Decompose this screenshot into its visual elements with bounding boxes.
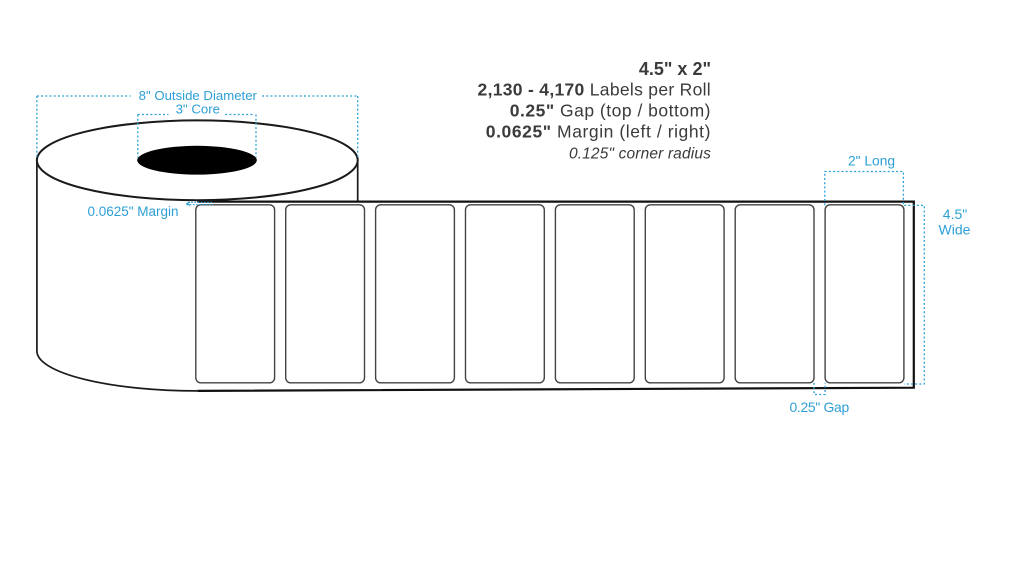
svg-text:0.0625" Margin (left / right): 0.0625" Margin (left / right) [486,122,711,142]
svg-text:3" Core: 3" Core [176,101,220,116]
svg-text:0.0625" Margin: 0.0625" Margin [87,204,178,219]
svg-text:2,130 - 4,170 Labels per Roll: 2,130 - 4,170 Labels per Roll [478,79,711,99]
svg-text:0.25" Gap: 0.25" Gap [790,399,850,415]
svg-text:Wide: Wide [939,222,971,238]
svg-text:0.125" corner radius: 0.125" corner radius [569,145,711,162]
svg-text:4.5" x 2": 4.5" x 2" [639,59,711,79]
svg-text:4.5": 4.5" [943,206,967,222]
svg-text:0.25" Gap (top / bottom): 0.25" Gap (top / bottom) [510,100,711,120]
svg-text:2" Long: 2" Long [848,154,895,169]
